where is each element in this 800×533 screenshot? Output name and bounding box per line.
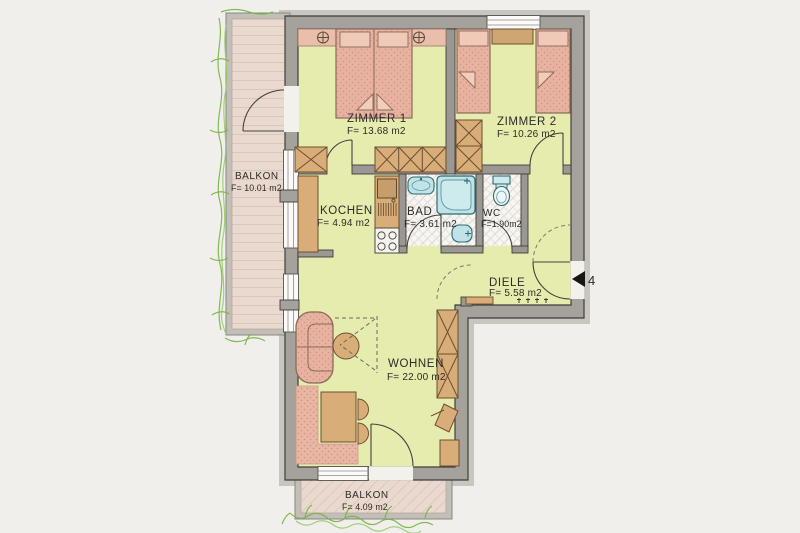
floor-plan-drawing: 4 BALKON F= 10.01 m2 ZIMMER 1 F= 13.68 m… [0, 0, 800, 533]
pillow [538, 31, 568, 46]
single-bed [457, 29, 490, 113]
entrance-number: 4 [588, 273, 595, 288]
zimmer1-balcony-door-opening [284, 86, 299, 132]
label-wohnen: WOHNEN [388, 358, 444, 370]
double-bed [336, 29, 412, 118]
area-kochen: F= 4.94 m2 [317, 218, 370, 229]
toilet-tank [493, 176, 510, 184]
label-kochen: KOCHEN [320, 205, 373, 217]
wohnen-bottom-window [318, 467, 368, 481]
coffee-table [333, 333, 359, 359]
floor-plan-page: 4 BALKON F= 10.01 m2 ZIMMER 1 F= 13.68 m… [0, 0, 800, 533]
pillow [378, 32, 408, 47]
kitchen-tall-cabinet [298, 176, 318, 252]
desk [440, 440, 459, 466]
bathtub [437, 176, 475, 214]
pillow [340, 32, 370, 47]
area-wc: F=1.90m2 [481, 219, 522, 229]
area-balkon-left: F= 10.01 m2 [231, 183, 282, 193]
label-balkon-left: BALKON [235, 171, 279, 182]
wc-fixtures [493, 176, 510, 206]
wohnen-balcony-door-opening [369, 467, 413, 481]
zimmer2-top-window [487, 16, 540, 30]
stove [375, 228, 399, 253]
label-zimmer2: ZIMMER 2 [497, 116, 557, 128]
area-bad: F= 3.61 m2 [404, 219, 457, 230]
area-zimmer2: F= 10.26 m2 [497, 129, 556, 140]
dining-table [321, 392, 356, 442]
label-zimmer1: ZIMMER 1 [347, 113, 407, 125]
area-wohnen: F= 22.00 m2 [387, 372, 446, 383]
pillow [459, 31, 488, 46]
area-balkon-bottom: F= 4.09 m2 [342, 502, 388, 512]
washbasin [408, 177, 434, 194]
wall-unit-wardrobe [437, 310, 458, 398]
area-zimmer1: F= 13.68 m2 [347, 126, 406, 137]
sofa [296, 312, 333, 383]
nightstand [492, 29, 533, 44]
single-bed [536, 29, 570, 113]
label-balkon-bottom: BALKON [345, 490, 389, 501]
area-diele: F= 5.58 m2 [489, 288, 542, 299]
label-bad: BAD [407, 206, 432, 218]
label-wc: WC [483, 208, 501, 219]
wardrobe [456, 120, 482, 172]
